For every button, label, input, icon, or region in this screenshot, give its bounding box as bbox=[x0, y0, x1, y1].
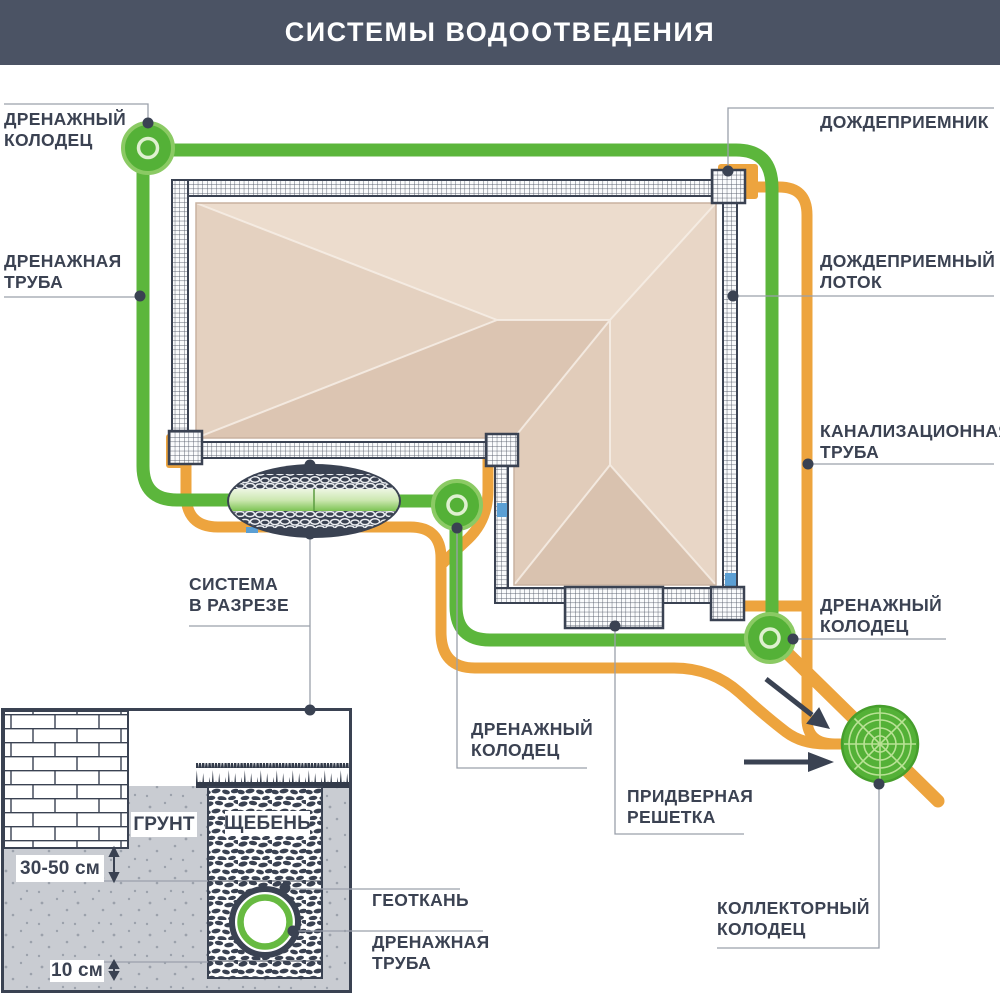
section-pipe bbox=[232, 889, 298, 955]
label-door-grate: ПРИДВЕРНАЯ РЕШЕТКА bbox=[627, 786, 753, 828]
label-drainage-pipe-section: ДРЕНАЖНАЯ ТРУБА bbox=[372, 932, 489, 974]
drainage-well-right bbox=[746, 614, 794, 662]
label-system-in-section: СИСТЕМА В РАЗРЕЗЕ bbox=[189, 574, 289, 616]
depth-dim-box: 30-50 см bbox=[16, 855, 104, 882]
label-drainage-well-center: ДРЕНАЖНЫЙ КОЛОДЕЦ bbox=[471, 719, 593, 761]
label-drainage-pipe-left: ДРЕНАЖНАЯ ТРУБА bbox=[4, 251, 121, 293]
gravel-box: ЩЕБЕНЬ bbox=[225, 811, 310, 836]
drainage-well-top-left bbox=[123, 123, 173, 173]
cutaway-ellipse bbox=[227, 464, 401, 538]
bottom-dim-box: 10 см bbox=[50, 960, 104, 982]
cross-section-detail bbox=[3, 710, 351, 992]
label-drainage-well-top-left: ДРЕНАЖНЫЙ КОЛОДЕЦ bbox=[4, 109, 126, 151]
collector-well bbox=[842, 706, 918, 782]
infographic-page: СИСТЕМЫ ВОДООТВЕДЕНИЯ bbox=[0, 0, 1000, 1000]
label-collector-well: КОЛЛЕКТОРНЫЙ КОЛОДЕЦ bbox=[717, 898, 870, 940]
drainage-diagram-canvas bbox=[0, 0, 1000, 1000]
drainage-well-center bbox=[433, 481, 481, 529]
label-rain-inlet: ДОЖДЕПРИЕМНИК bbox=[820, 112, 989, 133]
label-sewer-pipe: КАНАЛИЗАЦИОННАЯ ТРУБА bbox=[820, 421, 1000, 463]
label-drainage-well-right: ДРЕНАЖНЫЙ КОЛОДЕЦ bbox=[820, 595, 942, 637]
label-geotextile: ГЕОТКАНЬ bbox=[372, 890, 469, 911]
label-rain-tray: ДОЖДЕПРИЕМНЫЙ ЛОТОК bbox=[820, 251, 995, 293]
soil-box: ГРУНТ bbox=[131, 812, 197, 837]
